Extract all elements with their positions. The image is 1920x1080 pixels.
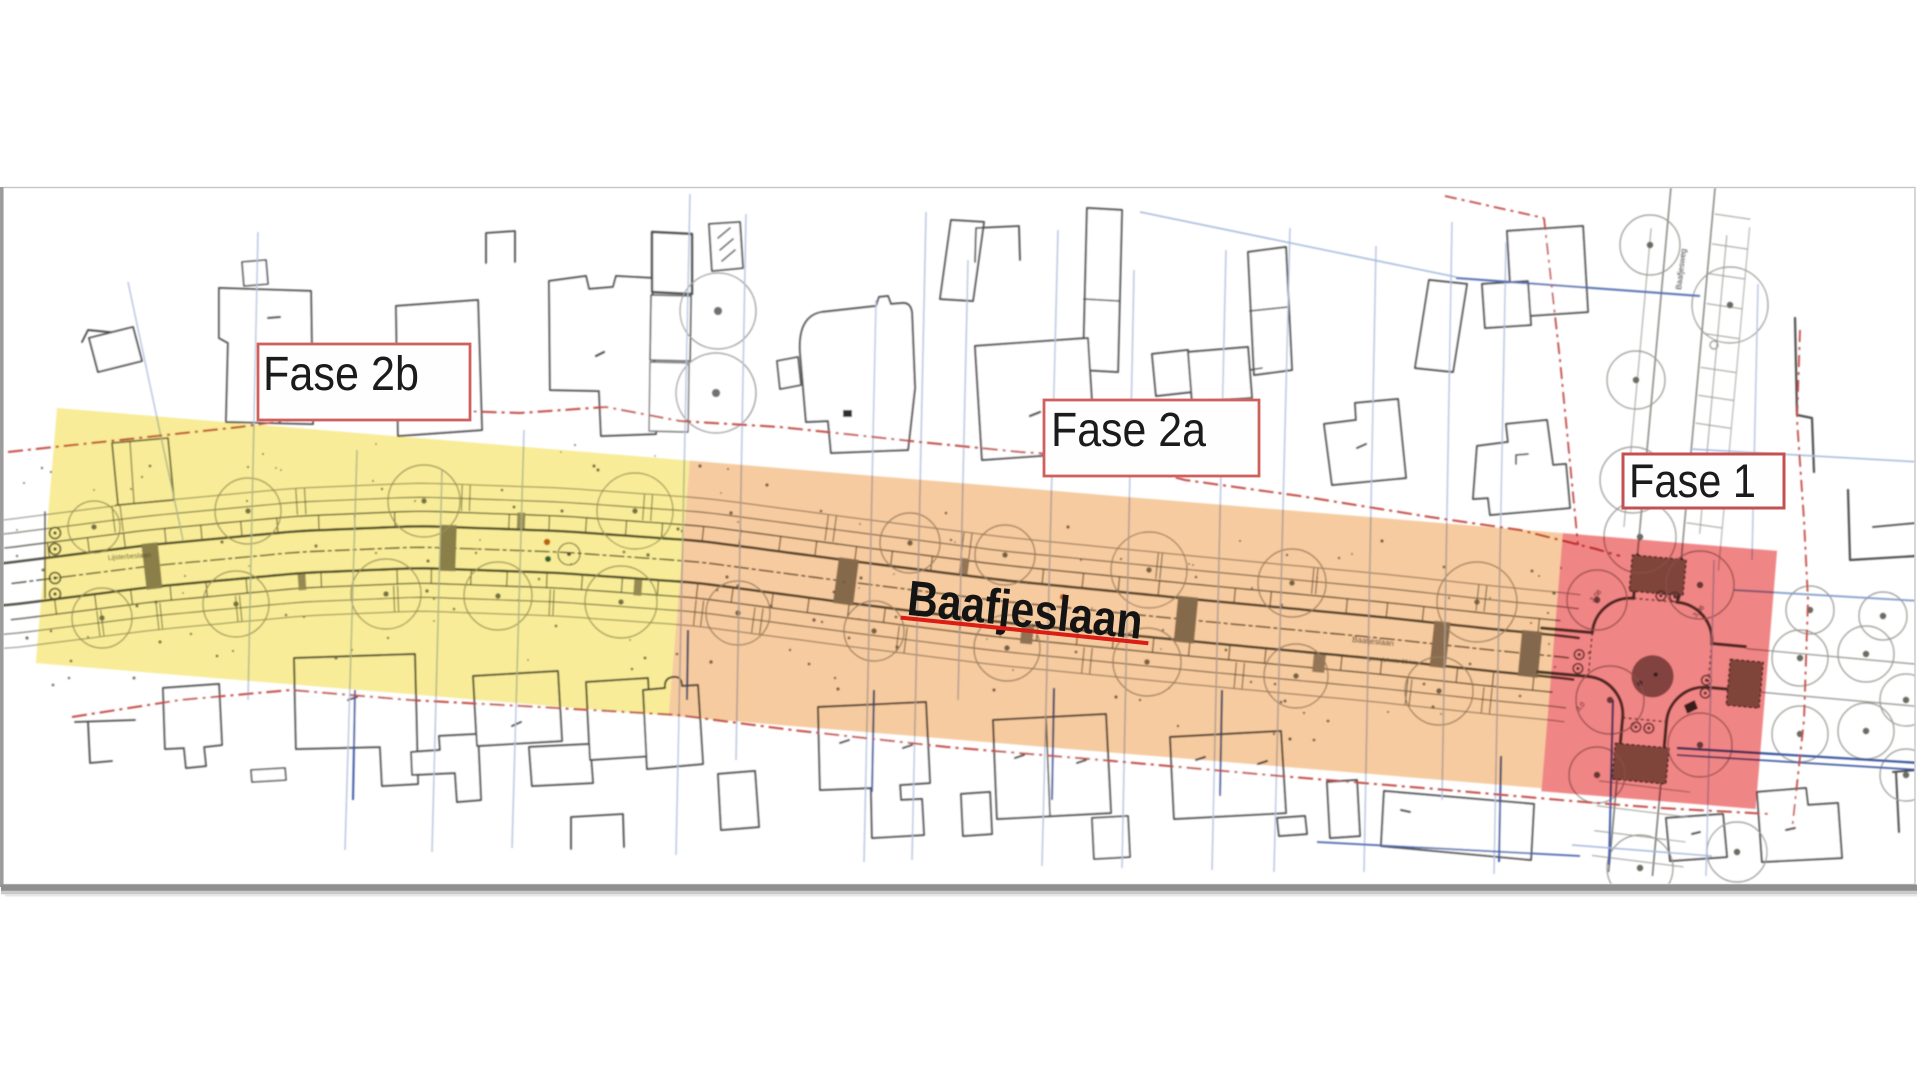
svg-text:Fase 2b: Fase 2b: [263, 348, 419, 401]
svg-text:Fase 1: Fase 1: [1629, 454, 1756, 507]
svg-text:Fase 2a: Fase 2a: [1051, 404, 1206, 457]
